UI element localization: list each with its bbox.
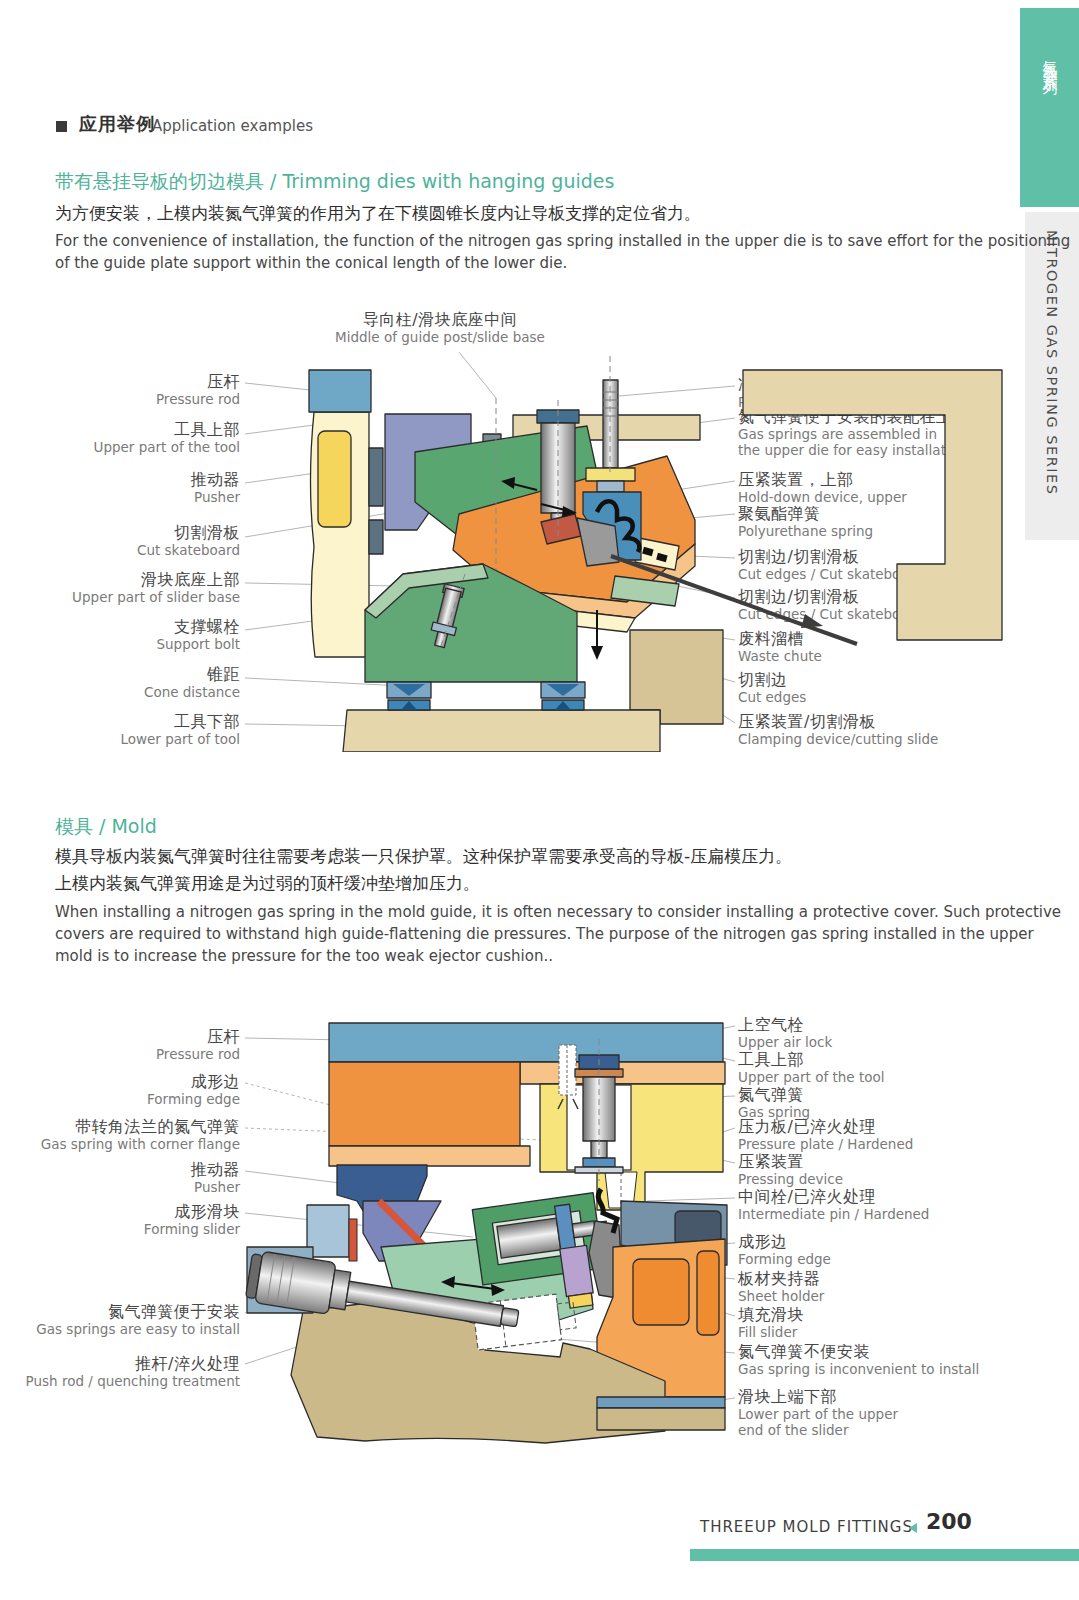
d2-label-pressure-rod: 压杆Pressure rod	[0, 1028, 240, 1063]
section1-body-zh: 为方便安装，上模内装氮气弹簧的作用为了在下模圆锥长度内让导板支撑的定位省力。	[55, 200, 701, 227]
d2-pressure-rod	[329, 1023, 723, 1062]
d1-label-guide-post: 导向柱/滑块底座中间 Middle of guide post/slide ba…	[320, 311, 560, 346]
sidebar-series-tab: 氮气弹簧系列	[1020, 8, 1079, 207]
d1-label-cone-distance: 锥距Cone distance	[0, 666, 240, 701]
catalog-page: 应用举例 Application examples 氮气弹簧系列 NITROGE…	[0, 0, 1079, 1600]
d1-label-slider-base-upper: 滑块底座上部Upper part of slider base	[0, 571, 240, 606]
d2-label-forming-edge: 成形边Forming edge	[0, 1073, 240, 1108]
d1-label-cut-skateboard: 切割滑板Cut skateboard	[0, 524, 240, 559]
page-header-zh: 应用举例	[79, 112, 155, 136]
d2-label-corner-flange-spring: 带转角法兰的氮气弹簧Gas spring with corner flange	[0, 1118, 240, 1153]
d1-pressure-rod	[309, 370, 371, 412]
page-header-en: Application examples	[152, 117, 313, 135]
d1-label-upper-tool: 工具上部Upper part of the tool	[0, 421, 240, 456]
mold-diagram	[245, 995, 1010, 1445]
d1-label-lower-tool: 工具下部Lower part of tool	[0, 713, 240, 748]
section2-title: 模具 / Mold	[55, 814, 157, 840]
footer-brand: THREEUP MOLD FITTINGS	[700, 1518, 913, 1536]
footer-page-number: 200	[926, 1509, 972, 1534]
d1-label-support-bolt: 支撑螺栓Support bolt	[0, 618, 240, 653]
d1-foot-left	[387, 682, 431, 710]
section1-title: 带有悬挂导板的切边模具 / Trimming dies with hanging…	[55, 169, 614, 195]
section2-body-en: When installing a nitrogen gas spring in…	[55, 901, 1061, 967]
section2-body-zh: 模具导板内装氮气弹簧时往往需要考虑装一只保护罩。这种保护罩需要承受高的导板-压扁…	[55, 843, 792, 897]
d2-upper-die	[329, 1062, 520, 1146]
sidebar-series-en: NITROGEN GAS SPRING SERIES	[1044, 230, 1060, 540]
d1-pusher	[318, 431, 351, 527]
sidebar-series-zh: 氮气弹簧系列	[1040, 48, 1059, 207]
d2-label-easy-install-spring: 氮气弹簧便于安装Gas springs are easy to install	[0, 1303, 240, 1338]
d2-label-forming-slider: 成形滑块Forming slider	[0, 1203, 240, 1238]
footer-accent-bar	[690, 1549, 1079, 1561]
section1-body-en: For the convenience of installation, the…	[55, 230, 1070, 274]
trimming-die-diagram	[245, 352, 1010, 752]
d1-lower-tool	[343, 710, 660, 752]
d1-label-pusher: 推动器Pusher	[0, 471, 240, 506]
footer-arrow-icon	[909, 1523, 917, 1533]
d1-upper-right-tool	[743, 370, 1002, 640]
d2-label-push-rod: 推杆/淬火处理Push rod / quenching treatment	[0, 1355, 240, 1390]
section-bullet-icon	[56, 121, 67, 132]
d1-label-pressure-rod: 压杆Pressure rod	[0, 373, 240, 408]
d2-label-pusher: 推动器Pusher	[0, 1161, 240, 1196]
d1-foot-right	[541, 682, 585, 710]
